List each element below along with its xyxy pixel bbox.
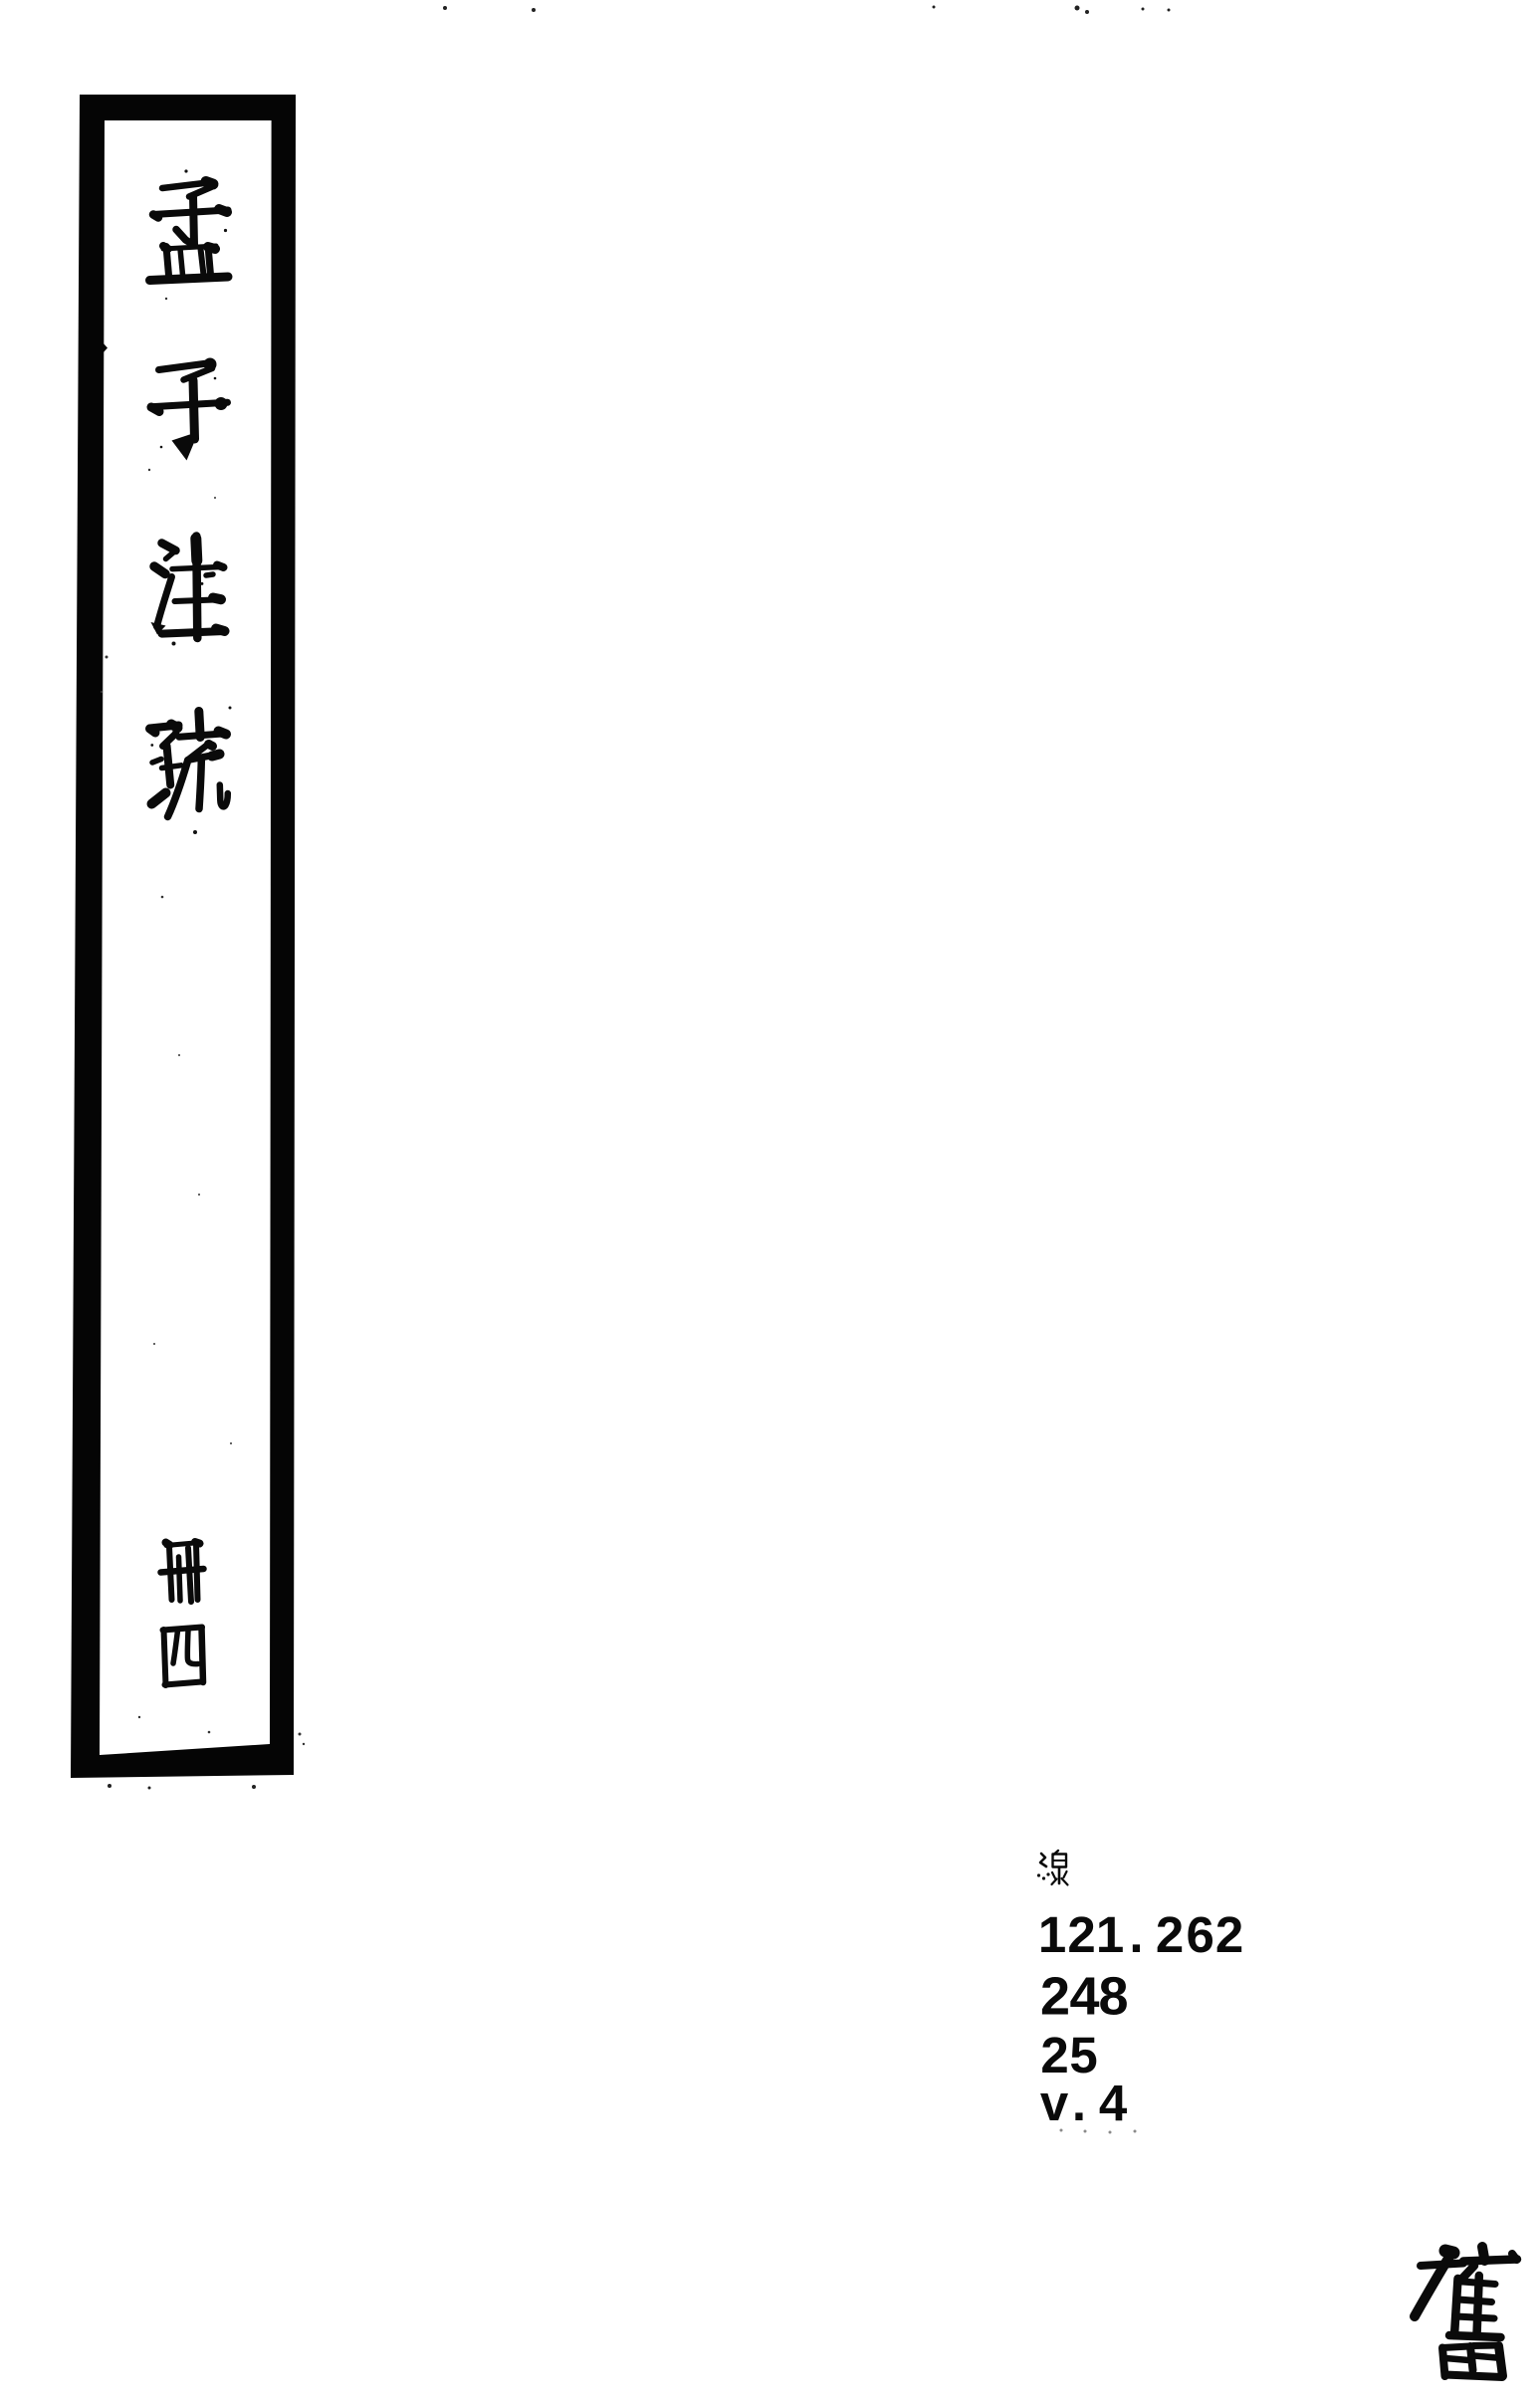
svg-text:v.4: v.4	[1040, 2075, 1128, 2131]
svg-text:248: 248	[1040, 1967, 1129, 2027]
svg-text:121.262: 121.262	[1038, 1906, 1243, 1963]
